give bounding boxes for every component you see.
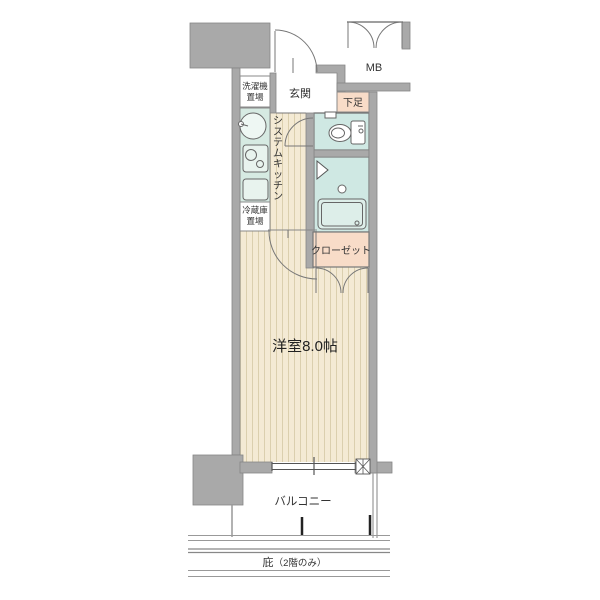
wall-left <box>232 68 240 455</box>
label-washer-2: 置場 <box>246 92 264 102</box>
wall-mb-right-post <box>402 22 410 49</box>
label-eaves-note: （2階のみ） <box>274 557 327 569</box>
label-main-room: 洋室8.0帖 <box>272 338 338 355</box>
mb-door-arc-right <box>376 22 402 48</box>
wall-under-mb <box>337 83 410 91</box>
label-washer-1: 洗濯機 <box>242 81 268 91</box>
label-shoe-box: 下足 <box>343 97 363 109</box>
label-balcony: バルコニー <box>274 495 331 508</box>
eaves-lines <box>188 536 390 577</box>
floorplan-page: 玄関 MB 下足 洗濯機 置場 システムキッチン 冷蔵庫 置場 クローゼット 洋… <box>0 0 600 600</box>
wall-bottom-left <box>240 462 272 473</box>
label-system-kitchen: システムキッチン <box>273 116 283 203</box>
counter-top <box>243 179 268 200</box>
wall-right <box>369 92 377 473</box>
wall-top-left-block <box>190 23 270 68</box>
wall-genkan-left <box>270 73 276 113</box>
entrance-door-arc <box>275 30 317 72</box>
wall-toilet-bath-divider <box>314 150 369 157</box>
label-mb: MB <box>366 62 383 74</box>
toilet-bowl <box>329 125 351 142</box>
ps-hatch <box>356 459 370 474</box>
floorplan-drawing: 玄関 MB 下足 洗濯機 置場 システムキッチン 冷蔵庫 置場 クローゼット 洋… <box>0 0 600 600</box>
label-eaves: 庇 <box>263 555 274 569</box>
label-closet: クローゼット <box>311 245 371 257</box>
bath-drain-icon <box>338 185 346 193</box>
mb-door-arc-left <box>348 22 374 48</box>
wall-bottom-left-block <box>193 455 243 505</box>
kitchen-sink-icon <box>240 113 266 139</box>
label-fridge-2: 置場 <box>246 216 264 226</box>
label-fridge-1: 冷蔵庫 <box>242 205 268 215</box>
label-genkan: 玄関 <box>289 86 311 100</box>
toilet-paper-holder <box>325 112 336 118</box>
